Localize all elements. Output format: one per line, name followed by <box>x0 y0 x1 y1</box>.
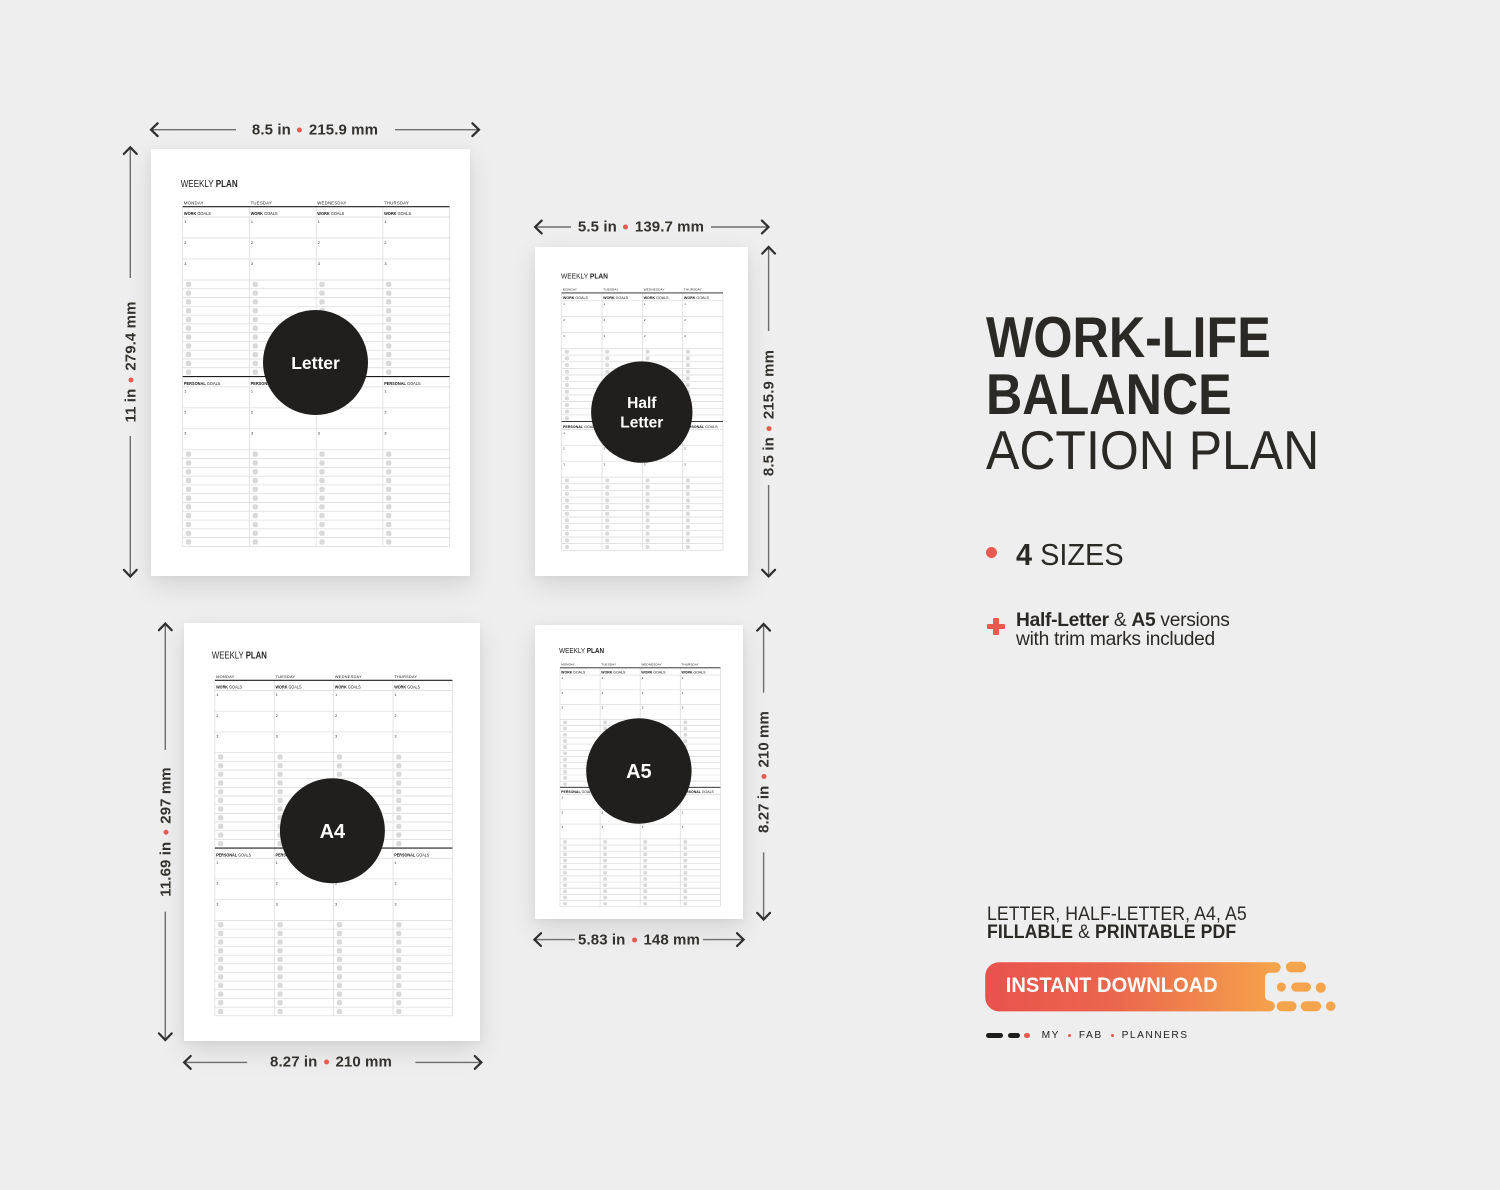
svg-text:INSTANT DOWNLOAD: INSTANT DOWNLOAD <box>1006 974 1218 997</box>
